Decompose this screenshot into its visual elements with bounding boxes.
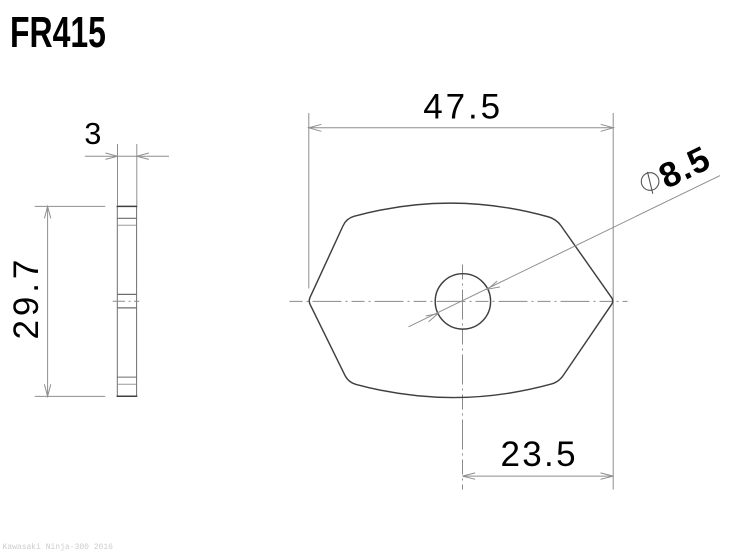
svg-text:Kawasaki Ninja-300 2016: Kawasaki Ninja-300 2016 <box>3 543 114 552</box>
svg-text:47.5: 47.5 <box>423 87 503 126</box>
svg-text:FR415: FR415 <box>10 8 106 57</box>
svg-text:23.5: 23.5 <box>501 435 578 474</box>
svg-text:3: 3 <box>84 117 101 151</box>
svg-text:29.7: 29.7 <box>7 256 46 340</box>
